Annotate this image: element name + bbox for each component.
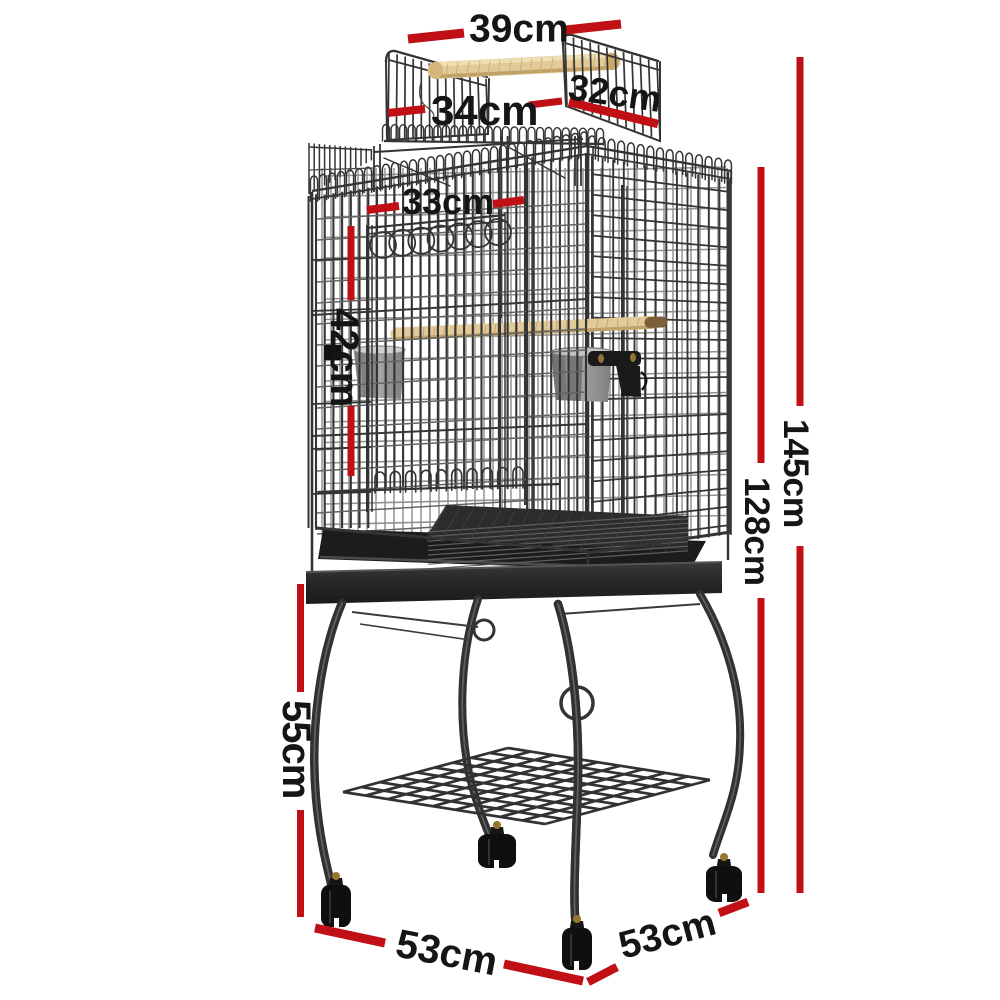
svg-text:55cm: 55cm [274, 700, 318, 798]
svg-text:53cm: 53cm [614, 901, 720, 968]
svg-text:33cm: 33cm [402, 181, 494, 222]
svg-text:34cm: 34cm [431, 87, 538, 134]
svg-text:39cm: 39cm [469, 8, 569, 51]
svg-text:53cm: 53cm [392, 922, 501, 985]
svg-text:42cm: 42cm [322, 308, 366, 406]
svg-text:145cm: 145cm [776, 419, 816, 528]
svg-text:128cm: 128cm [737, 477, 776, 586]
